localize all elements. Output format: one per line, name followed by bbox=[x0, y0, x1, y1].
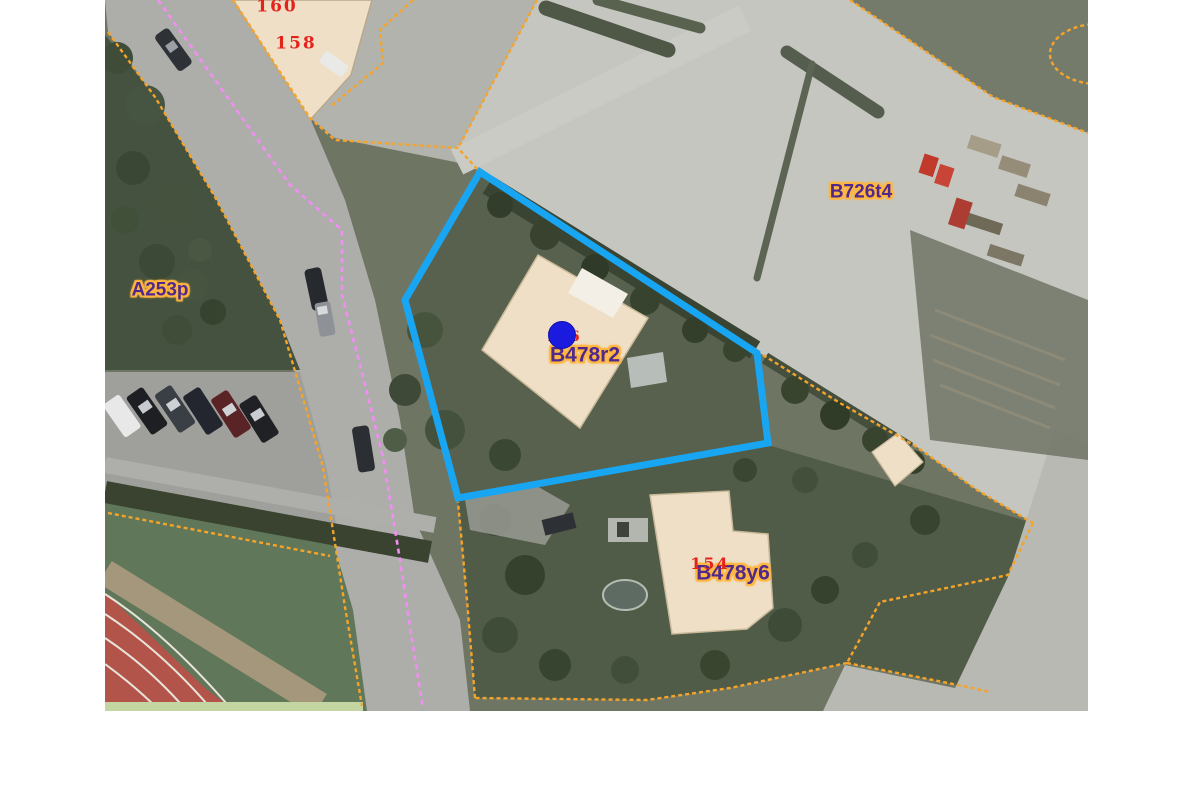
house-number-160: 160 bbox=[256, 0, 298, 16]
house-number-154: 154 bbox=[690, 556, 729, 572]
house-number-158: 158 bbox=[275, 36, 317, 53]
map-viewport[interactable]: 160 158 A253p B726t4 156 B478r2 154 B478… bbox=[105, 0, 1088, 711]
field-edge-strip bbox=[105, 702, 363, 711]
parcel-label-a253p[interactable]: A253p bbox=[131, 281, 188, 300]
garden-shed bbox=[608, 518, 648, 542]
garden-pond bbox=[603, 580, 647, 610]
selected-parcel-marker[interactable] bbox=[548, 321, 576, 349]
parcel-label-b726t4[interactable]: B726t4 bbox=[830, 183, 892, 202]
